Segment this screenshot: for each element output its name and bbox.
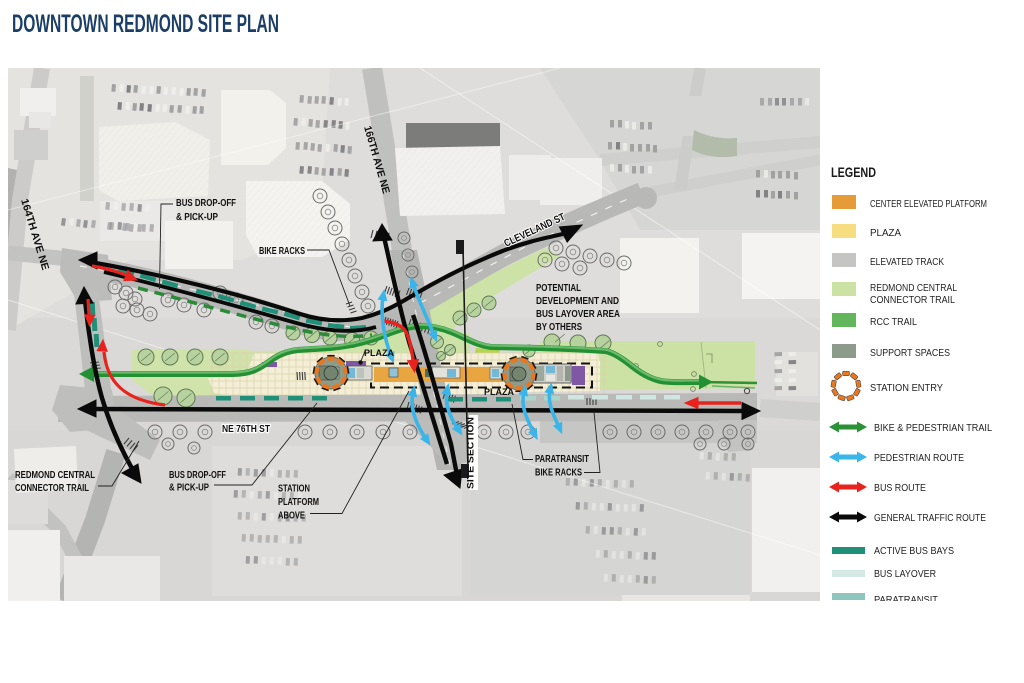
svg-text:STATION ENTRY: STATION ENTRY [870,383,943,394]
svg-text:REDMOND CENTRAL: REDMOND CENTRAL [15,469,95,481]
svg-text:BUS LAYOVER: BUS LAYOVER [874,569,936,580]
svg-text:BIKE RACKS: BIKE RACKS [535,467,582,479]
svg-text:PEDESTRIAN ROUTE: PEDESTRIAN ROUTE [874,453,964,464]
svg-text:DEVELOPMENT AND: DEVELOPMENT AND [536,295,619,307]
svg-text:GENERAL TRAFFIC ROUTE: GENERAL TRAFFIC ROUTE [874,513,986,524]
svg-text:CENTER ELEVATED PLATFORM: CENTER ELEVATED PLATFORM [870,199,987,210]
svg-text:PLAZA: PLAZA [870,228,902,239]
svg-text:LEGEND: LEGEND [831,165,876,180]
svg-text:ACTIVE BUS BAYS: ACTIVE BUS BAYS [874,546,954,557]
svg-text:POTENTIAL: POTENTIAL [536,282,581,294]
svg-text:& PICK-UP: & PICK-UP [176,211,218,223]
svg-text:PLAZA: PLAZA [364,348,394,358]
svg-text:BUS DROP-OFF: BUS DROP-OFF [176,197,236,209]
svg-text:CONNECTOR TRAIL: CONNECTOR TRAIL [15,482,89,494]
svg-text:& PICK-UP: & PICK-UP [169,482,209,494]
svg-text:PLAZA: PLAZA [484,387,514,397]
svg-text:BUS ROUTE: BUS ROUTE [874,483,926,494]
svg-text:SITE SECTION: SITE SECTION [466,417,477,489]
svg-text:PARATRANSIT: PARATRANSIT [874,595,938,606]
svg-text:RCC TRAIL: RCC TRAIL [870,317,917,328]
svg-text:ELEVATED TRACK: ELEVATED TRACK [870,257,944,268]
svg-text:BUS DROP-OFF: BUS DROP-OFF [169,469,226,481]
svg-text:SUPPORT SPACES: SUPPORT SPACES [870,348,950,359]
svg-text:BIKE RACKS: BIKE RACKS [259,245,305,257]
svg-text:ABOVE: ABOVE [278,510,305,522]
svg-text:BY OTHERS: BY OTHERS [536,321,582,333]
svg-text:PARATRANSIT: PARATRANSIT [535,453,589,465]
svg-text:REDMOND CENTRAL: REDMOND CENTRAL [870,283,957,294]
svg-text:NE 76TH ST: NE 76TH ST [222,424,270,435]
svg-text:STATION: STATION [278,483,310,495]
svg-text:BUS LAYOVER AREA: BUS LAYOVER AREA [536,308,620,320]
svg-text:PLATFORM: PLATFORM [278,496,319,508]
svg-text:BIKE & PEDESTRIAN TRAIL: BIKE & PEDESTRIAN TRAIL [874,423,993,434]
svg-text:CONNECTOR TRAIL: CONNECTOR TRAIL [870,295,955,306]
svg-text:DOWNTOWN REDMOND SITE PLAN: DOWNTOWN REDMOND SITE PLAN [12,10,279,38]
